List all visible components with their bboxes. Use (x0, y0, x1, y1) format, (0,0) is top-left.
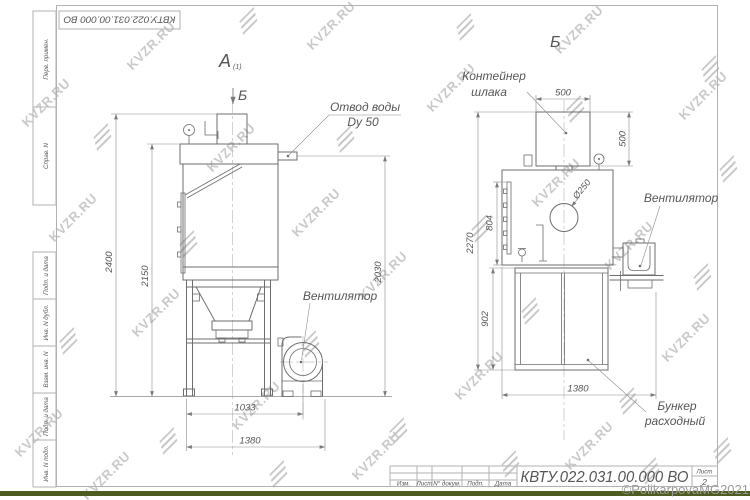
dim-500-width: 500 (555, 88, 572, 99)
callout-water-outlet-line2: Dy 50 (347, 115, 379, 129)
frame-label-sprav-n: Справ. N (43, 143, 50, 169)
copyright-watermark: ©PolikarpovaMG2021 (622, 482, 749, 497)
fan-side (610, 239, 663, 291)
frame-label-inv-dubl: Инв. N дубл. (43, 305, 50, 341)
titleblock-col-data: Дата (494, 481, 512, 488)
dim-1380-side: 1380 (567, 384, 589, 395)
titleblock-col-list: Лист (416, 481, 433, 488)
valve-icon (519, 249, 526, 256)
engineering-drawing: КВТУ.022.031.00.000 ВО Перв. примен. Спр… (0, 0, 750, 500)
titleblock-col-izm: Изм. (397, 481, 410, 488)
view-b-label: Б (550, 34, 560, 51)
frame-label-vzam-inv: Взам. инв. N (43, 351, 50, 388)
frame-label-perv-primen: Перв. примен. (43, 38, 50, 79)
dim-804: 804 (485, 215, 496, 231)
dim-500-height: 500 (618, 130, 629, 147)
titleblock-sheet-label: Лист (696, 469, 713, 476)
view-b: Б (462, 34, 718, 440)
callout-water-outlet-line1: Отвод воды (330, 100, 400, 114)
frame-label-inv-podl: Инв. N подл. (43, 445, 50, 481)
callout-slag-container-line2: шлака (471, 85, 507, 99)
dim-1380-front: 1380 (239, 436, 261, 447)
dim-d250: Ø250 (570, 177, 592, 201)
drawing-frame: КВТУ.022.031.00.000 ВО Перв. примен. Спр… (33, 6, 718, 488)
section-arrow-label: Б (238, 87, 247, 103)
dim-2030: 2030 (373, 261, 384, 284)
callout-fan-side: Вентилятор (644, 191, 719, 205)
dim-2150: 2150 (140, 265, 151, 288)
dim-2400: 2400 (104, 251, 115, 274)
callout-bunker-line2: расходный (644, 414, 706, 428)
dim-902: 902 (480, 310, 491, 327)
view-a: А (1) Б (104, 51, 401, 455)
frame-label-podp-data-2: Подп. и дата (43, 397, 50, 436)
frame-label-podp-data-1: Подп. и дата (43, 256, 50, 295)
callout-slag-container-line1: Контейнер (462, 69, 526, 83)
drawing-sheet: KVZR.RUKVZR.RUKVZR.RUKVZR.RUKVZR.RUKVZR.… (0, 0, 750, 500)
view-a-label: А (218, 51, 231, 71)
titleblock-col-ndokum: N° докум. (433, 481, 461, 488)
callout-fan-front: Вентилятор (303, 289, 378, 303)
dim-1033: 1033 (234, 403, 256, 414)
corner-stamp-designation: КВТУ.022.031.00.000 ВО (63, 15, 175, 25)
dim-2270: 2270 (465, 232, 476, 255)
view-a-label-sub: (1) (233, 64, 242, 71)
callout-bunker-line1: Бункер (657, 399, 696, 413)
titleblock-col-podp: Подп. (467, 481, 483, 488)
